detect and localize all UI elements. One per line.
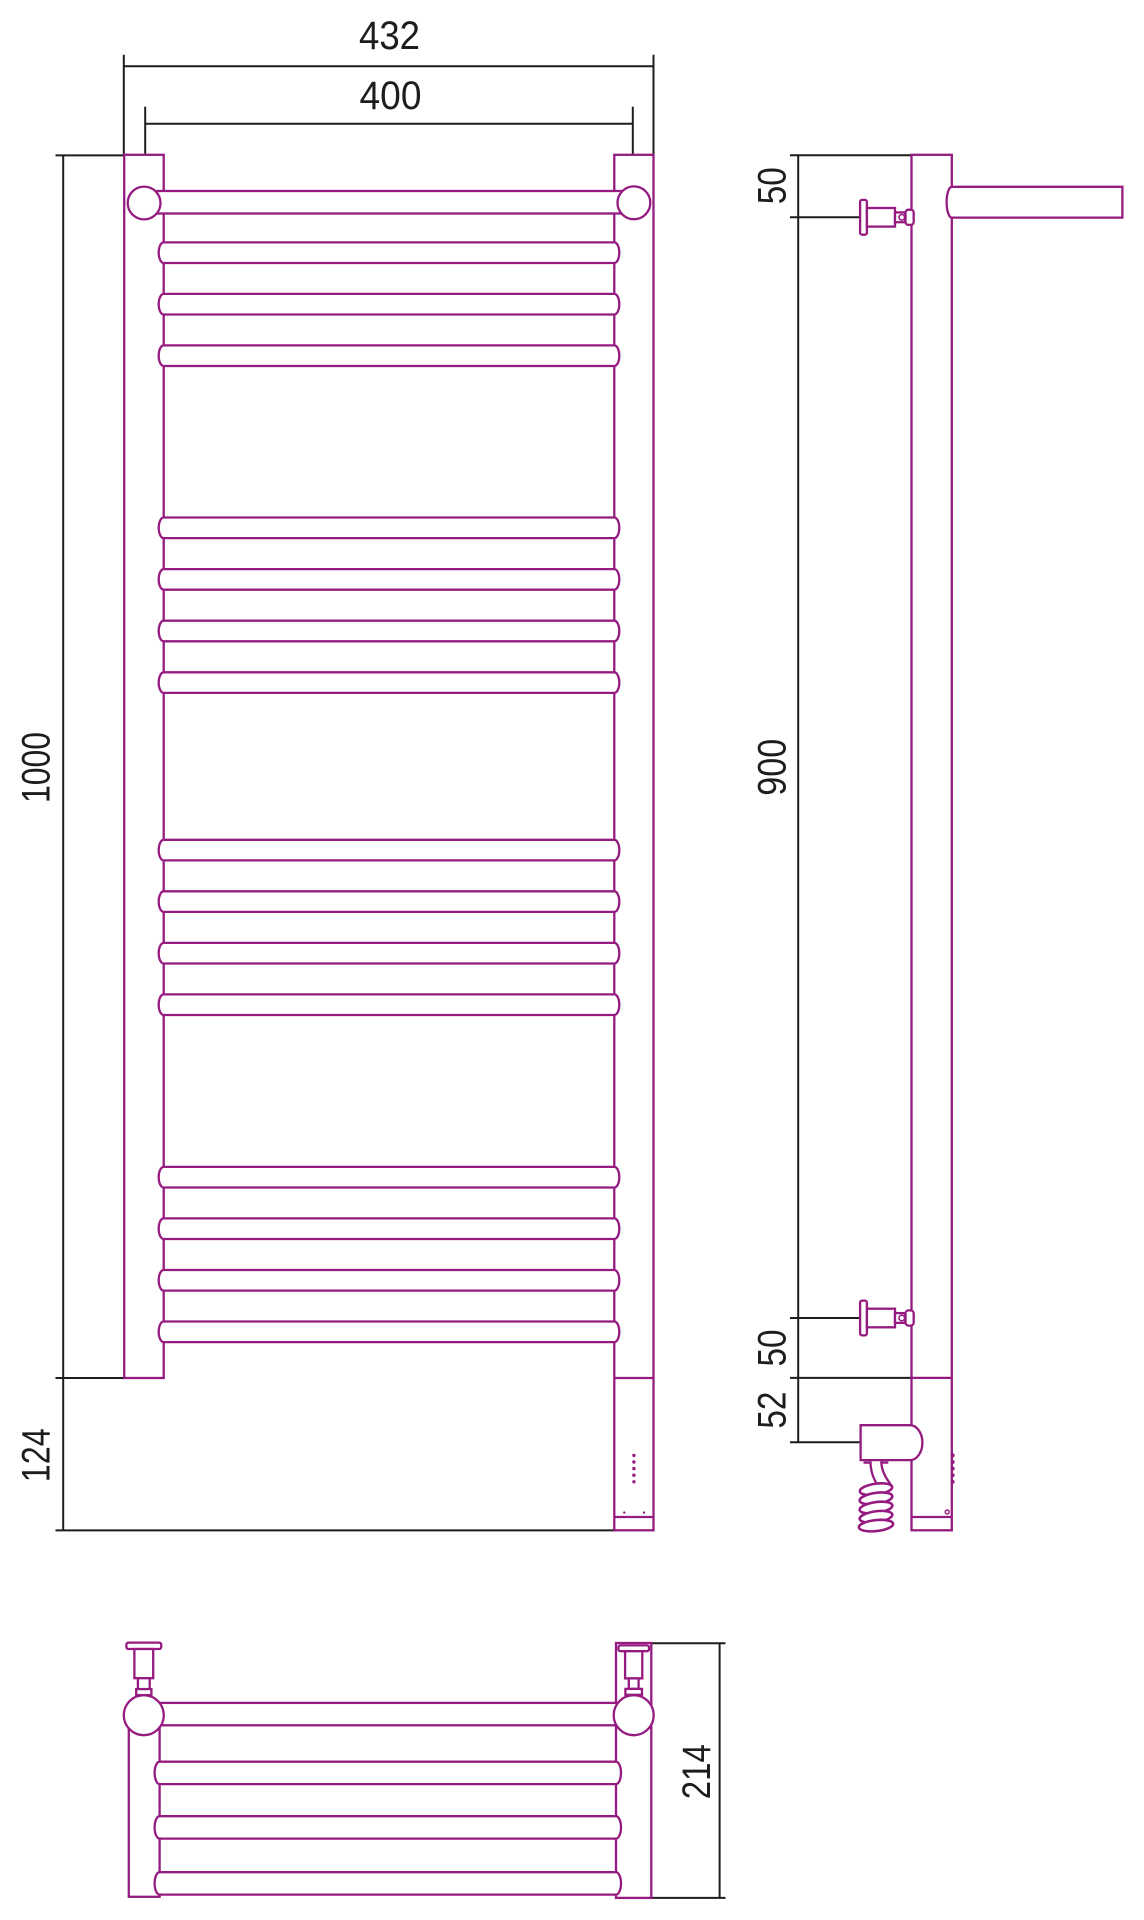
svg-text:900: 900 bbox=[750, 739, 794, 796]
svg-text:124: 124 bbox=[14, 1428, 58, 1482]
svg-text:50: 50 bbox=[750, 167, 794, 204]
svg-text:50: 50 bbox=[750, 1330, 794, 1367]
svg-text:432: 432 bbox=[359, 14, 420, 58]
svg-text:400: 400 bbox=[360, 74, 422, 118]
svg-text:1000: 1000 bbox=[15, 732, 59, 803]
svg-text:214: 214 bbox=[675, 1744, 719, 1799]
svg-text:52: 52 bbox=[750, 1392, 794, 1429]
